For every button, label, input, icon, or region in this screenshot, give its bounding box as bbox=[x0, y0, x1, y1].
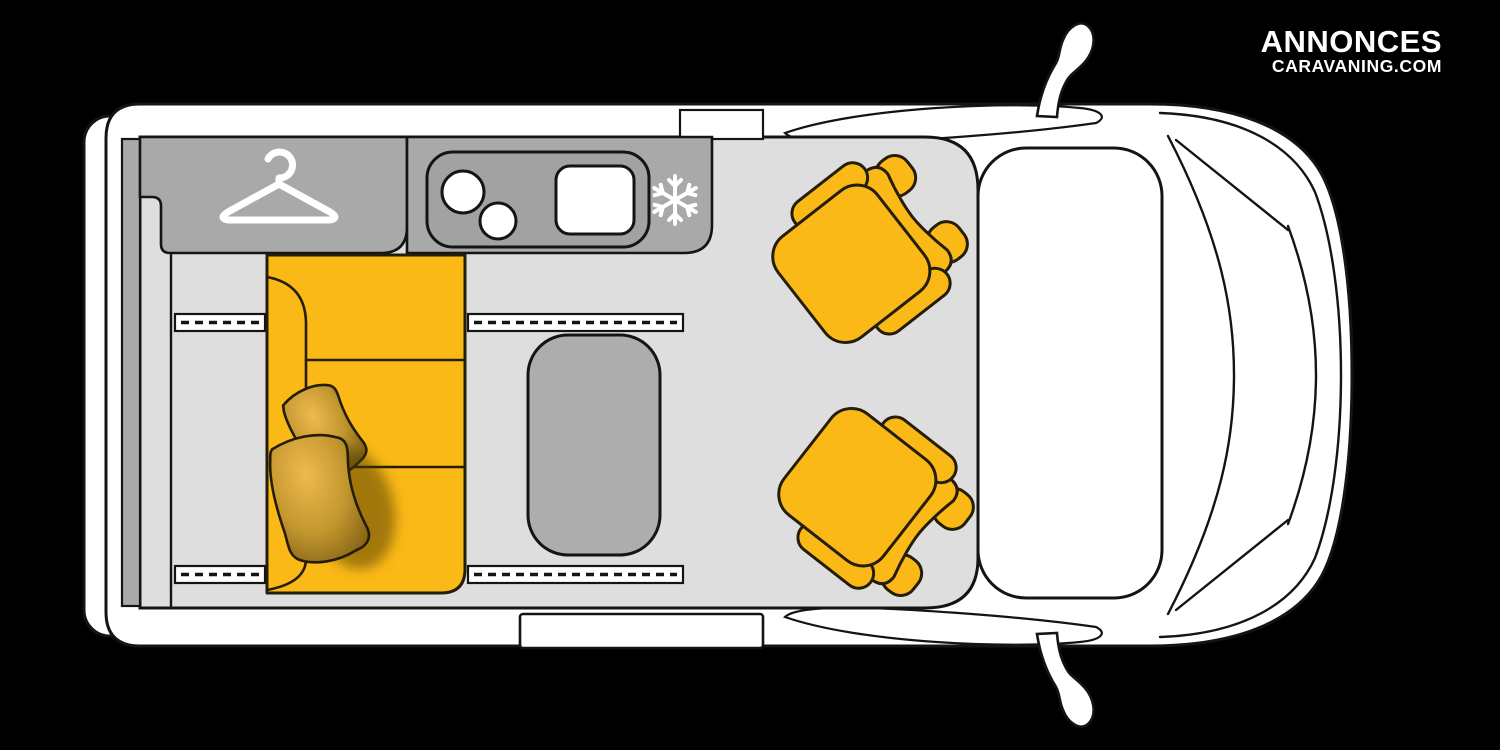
kitchen-counter bbox=[427, 152, 649, 247]
sliding-door-top-panel bbox=[680, 110, 763, 139]
sink bbox=[556, 166, 634, 234]
entry-step bbox=[520, 614, 763, 648]
floorplan-scene: ANNONCES CARAVANING.COM bbox=[0, 0, 1500, 750]
campervan-floorplan-svg bbox=[0, 0, 1500, 750]
cab-headliner bbox=[978, 148, 1162, 598]
table bbox=[528, 335, 660, 555]
brand-logo: ANNONCES CARAVANING.COM bbox=[1261, 26, 1442, 76]
bed-rail-bottom-right bbox=[468, 566, 683, 583]
brand-line1: ANNONCES bbox=[1261, 26, 1442, 57]
bed-rail-bottom-left bbox=[175, 566, 265, 583]
left-wall-strip bbox=[122, 139, 140, 606]
burner-small bbox=[480, 203, 516, 239]
bed-sofa bbox=[263, 255, 465, 593]
burner-large bbox=[442, 171, 484, 213]
bed-rail-top-right bbox=[468, 314, 683, 331]
bed-rail-top-left bbox=[175, 314, 265, 331]
brand-line2: CARAVANING.COM bbox=[1261, 58, 1442, 76]
